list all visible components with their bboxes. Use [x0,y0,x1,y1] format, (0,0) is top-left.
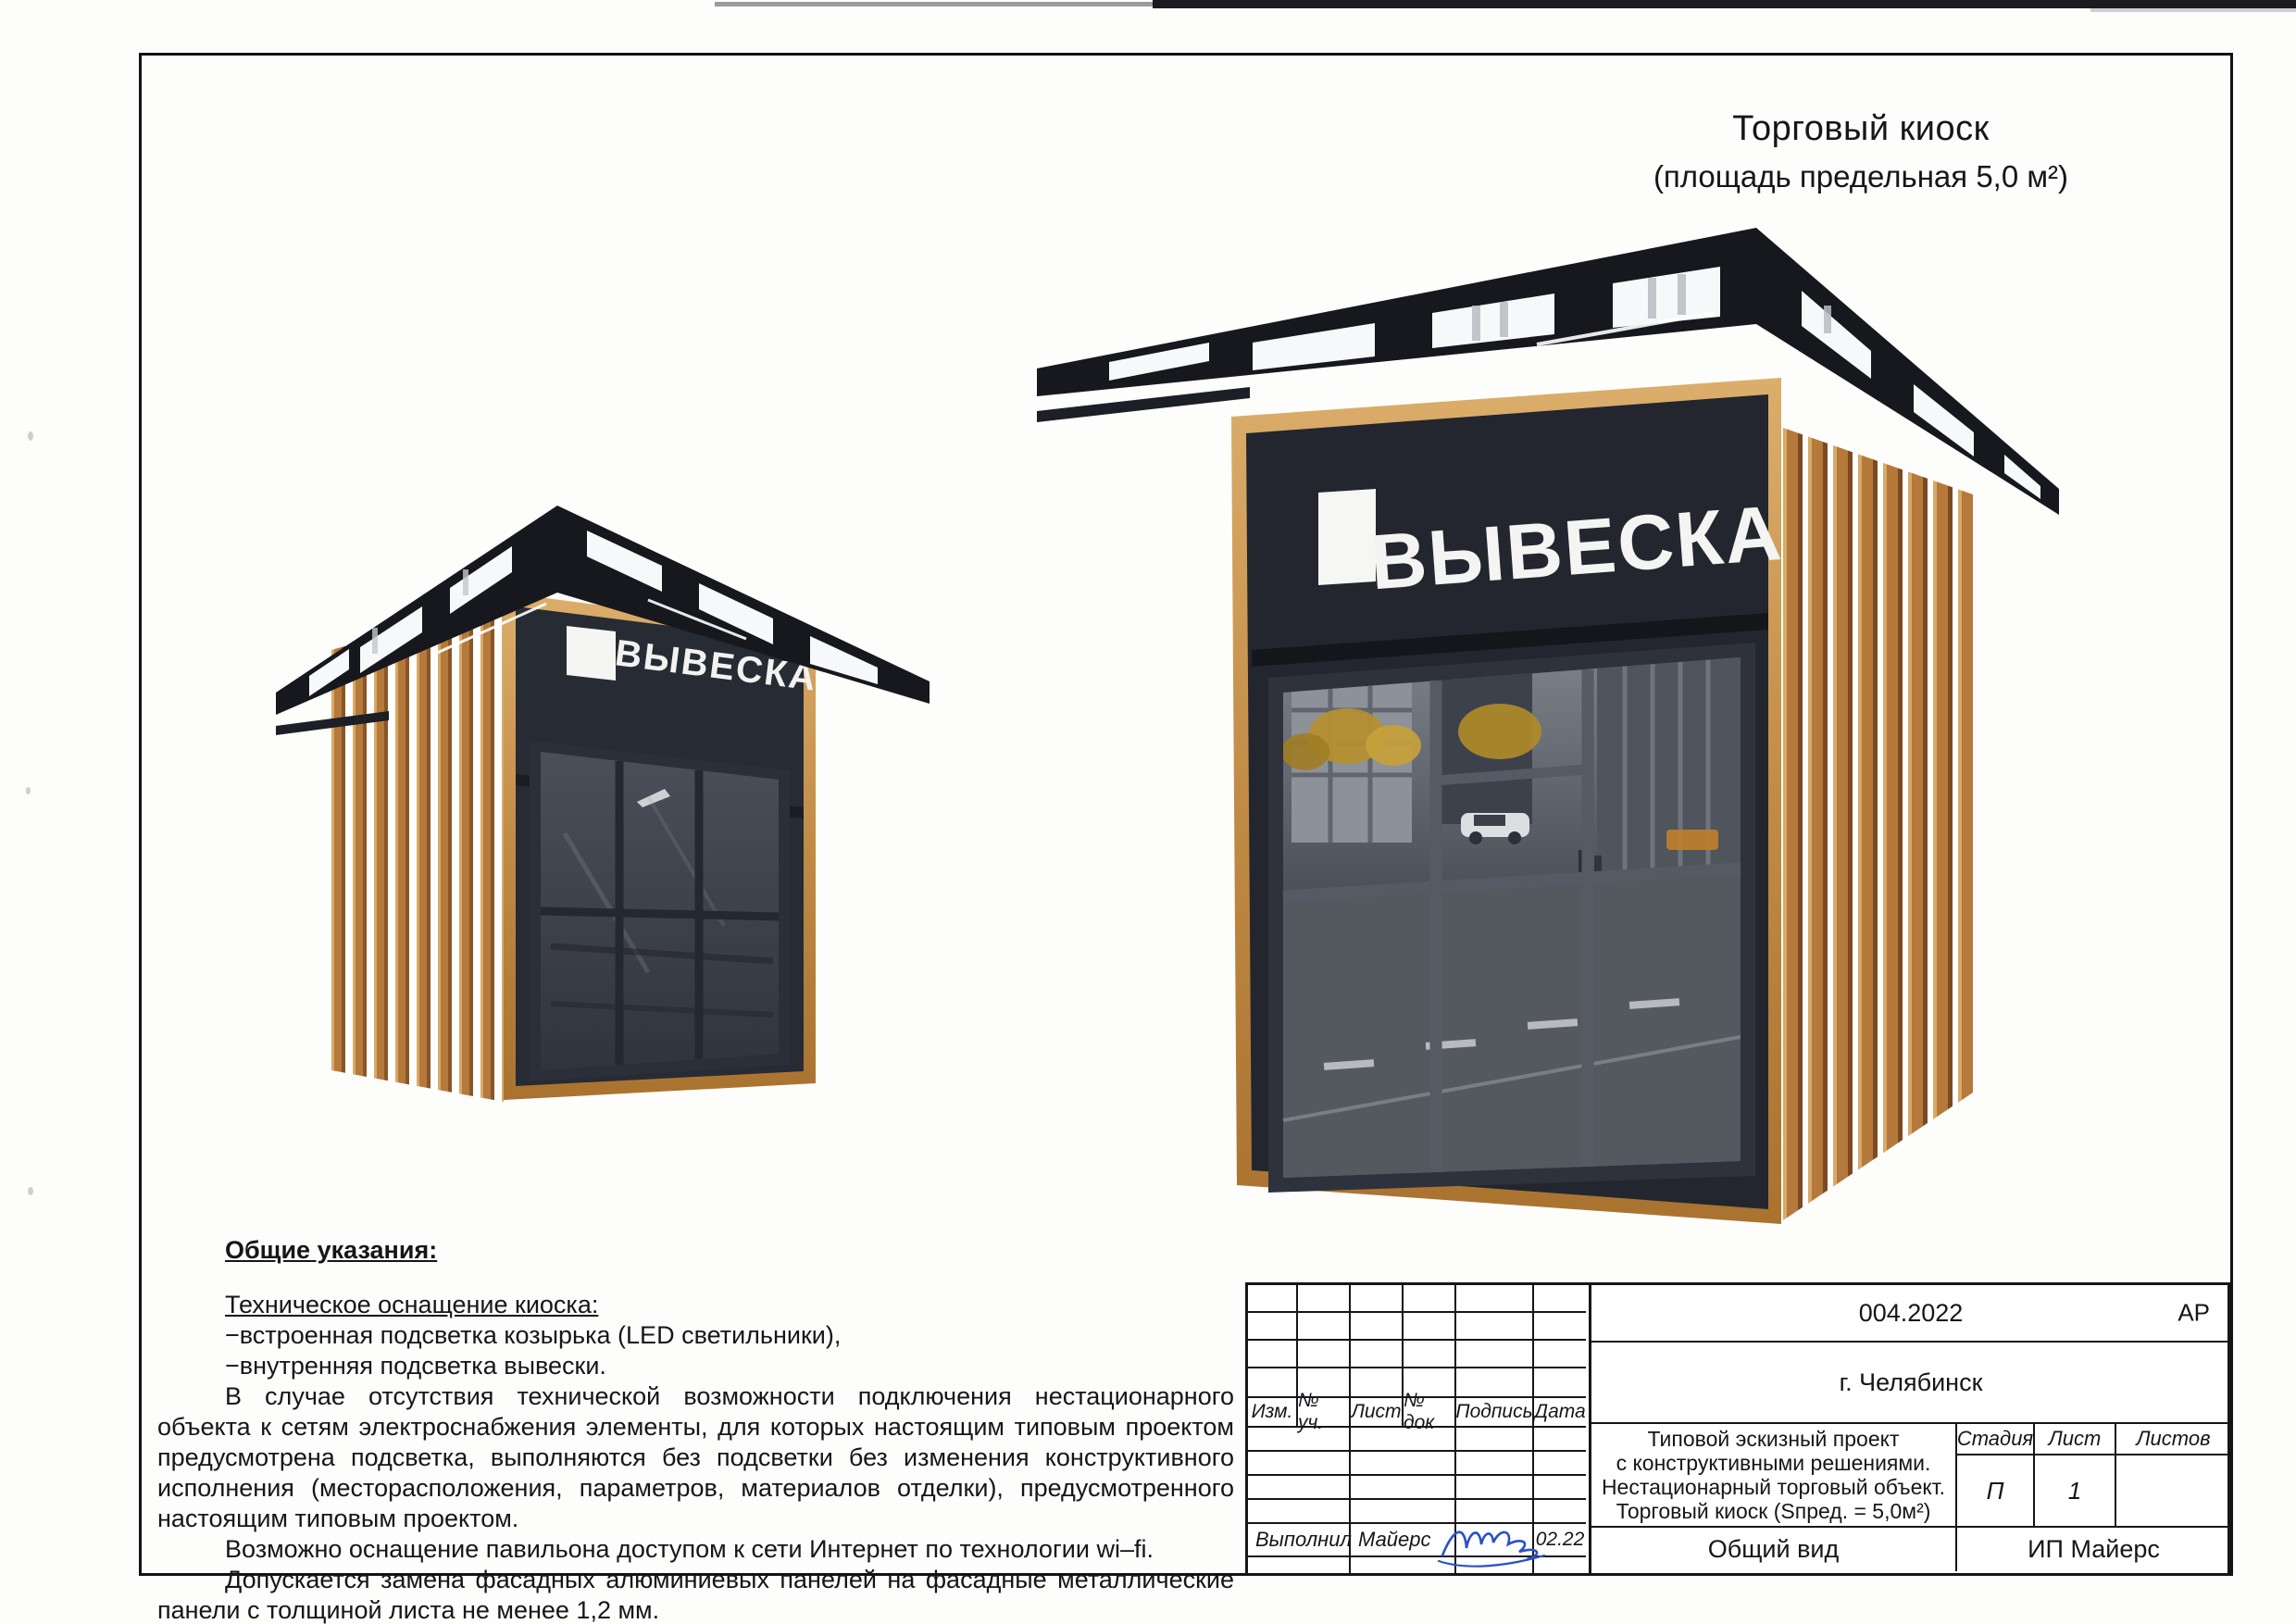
col-header-podpis: Подпись [1456,1398,1534,1428]
empty-cell [1534,1500,1586,1524]
reflected-foliage [1281,733,1329,770]
skylight-building-hint [463,569,468,595]
empty-cell [1248,1500,1351,1524]
signature-grid: Выполнил Майерс 02.22 [1248,1428,1589,1573]
title-block-revision-table: Изм. № уч. Лист № док Подпись Дата Выпол… [1248,1285,1591,1573]
small-kiosk-logo-square [567,626,616,681]
empty-cell [1456,1557,1534,1573]
empty-cell [1248,1313,1298,1341]
empty-cell [1534,1313,1586,1341]
sheets-total-header: Листов [2116,1424,2230,1455]
empty-cell [1456,1285,1534,1313]
empty-cell [1351,1500,1456,1524]
empty-cell [1248,1341,1298,1368]
empty-cell [1534,1341,1586,1368]
col-header-uch: № уч. [1298,1398,1351,1428]
reflected-road [1283,868,1741,1178]
view-band: Общий вид ИП Майерс [1591,1528,2230,1571]
empty-cell [1404,1285,1456,1313]
empty-cell [1404,1341,1456,1368]
empty-cell [1298,1313,1351,1341]
doc-number: 004.2022 [1859,1299,1964,1328]
col-header-dok: № док [1404,1398,1456,1428]
empty-cell [1351,1452,1456,1476]
title-block: Изм. № уч. Лист № док Подпись Дата Выпол… [1245,1282,2230,1576]
drawing-sheet: Торговый киоск (площадь предельная 5,0 м… [0,0,2296,1624]
empty-cell [1534,1368,1586,1398]
title-block-right: 004.2022 АР г. Челябинск Типовой эскизны… [1591,1285,2230,1573]
empty-cell [1298,1341,1351,1368]
empty-cell [1248,1476,1351,1500]
executor-date: 02.22 [1534,1524,1586,1557]
empty-cell [1351,1428,1456,1452]
skylight-building-hint [372,628,378,654]
notes-paragraph: Возможно оснащение павильона доступом к … [157,1534,1234,1565]
empty-cell [1351,1368,1404,1398]
empty-cell [1456,1368,1534,1398]
col-header-data: Дата [1534,1398,1586,1428]
reflected-car-wheel [1508,831,1521,844]
empty-cell [1456,1476,1534,1500]
empty-cell [1534,1452,1586,1476]
notes-paragraph: В случае отсутствия технической возможно… [157,1381,1234,1534]
empty-cell [1404,1313,1456,1341]
notes-subheading: Техническое оснащение киоска: [225,1290,598,1320]
revision-grid: Изм. № уч. Лист № док Подпись Дата [1248,1285,1589,1428]
executor-signature-cell [1456,1524,1534,1557]
stage-value: П [1957,1455,2035,1526]
col-header-list: Лист [1351,1398,1404,1428]
empty-cell [1456,1452,1534,1476]
view-name: Общий вид [1591,1528,1957,1571]
empty-cell [1351,1285,1404,1313]
empty-cell [1351,1313,1404,1341]
empty-cell [1298,1285,1351,1313]
doc-number-band: 004.2022 АР [1591,1285,2230,1343]
city-band: г. Челябинск [1591,1343,2230,1424]
empty-cell [1534,1285,1586,1313]
notes-bullet: −внутренняя подсветка вывески. [157,1351,1234,1381]
stage-grid: Стадия Лист Листов П 1 [1957,1424,2230,1526]
large-kiosk-wood-slats [1783,428,1973,1220]
empty-cell [1248,1428,1351,1452]
empty-cell [1456,1313,1534,1341]
doc-code: АР [2177,1299,2210,1328]
reflected-foliage [1458,704,1541,759]
empty-cell [1248,1557,1351,1573]
reflected-car-window [1474,815,1505,826]
company-name: ИП Майерс [1957,1528,2230,1571]
large-kiosk: ВЫВЕСКА [1037,228,2059,1224]
reflected-awning [1666,830,1718,850]
empty-cell [1534,1557,1586,1573]
notes-heading: Общие указания: [225,1235,437,1266]
reflected-car-wheel [1469,831,1482,844]
empty-cell [1456,1500,1534,1524]
notes-bullet: −встроенная подсветка козырька (LED свет… [157,1320,1234,1351]
sheet-header: Лист [2035,1424,2116,1455]
empty-cell [1351,1557,1456,1573]
empty-cell [1351,1476,1456,1500]
project-description: Типовой эскизный проект с конструктивным… [1591,1424,1957,1526]
large-kiosk-glass-reflections [1281,639,1745,1178]
large-kiosk-logo-square [1318,489,1376,585]
sheet-value: 1 [2035,1455,2116,1526]
general-notes: Общие указания: Техническое оснащение ки… [157,1235,1234,1624]
reflected-foliage [1366,725,1421,766]
stage-header: Стадия [1957,1424,2035,1455]
empty-cell [1534,1476,1586,1500]
empty-cell [1534,1428,1586,1452]
empty-cell [1248,1368,1298,1398]
executor-label: Выполнил [1248,1524,1351,1557]
sheets-total-value [2116,1455,2230,1526]
project-line: Торговый киоск (Sпред. = 5,0м²) [1591,1499,1955,1523]
small-kiosk: ВЫВЕСКА OF PO DAM [276,506,930,1102]
city: г. Челябинск [1840,1368,1983,1397]
executor-name: Майерс [1351,1524,1456,1557]
empty-cell [1456,1428,1534,1452]
empty-cell [1351,1341,1404,1368]
empty-cell [1248,1452,1351,1476]
notes-paragraph: Допускается замена фасадных алюминиевых … [157,1565,1234,1624]
empty-cell [1456,1341,1534,1368]
project-line: Типовой эскизный проект [1591,1427,1955,1451]
mullion [541,911,779,917]
col-header-izm: Изм. [1248,1398,1298,1428]
project-line: Нестационарный торговый объект. [1591,1475,1955,1499]
project-band: Типовой эскизный проект с конструктивным… [1591,1424,2230,1528]
project-line: с конструктивными решениями. [1591,1451,1955,1475]
empty-cell [1248,1285,1298,1313]
